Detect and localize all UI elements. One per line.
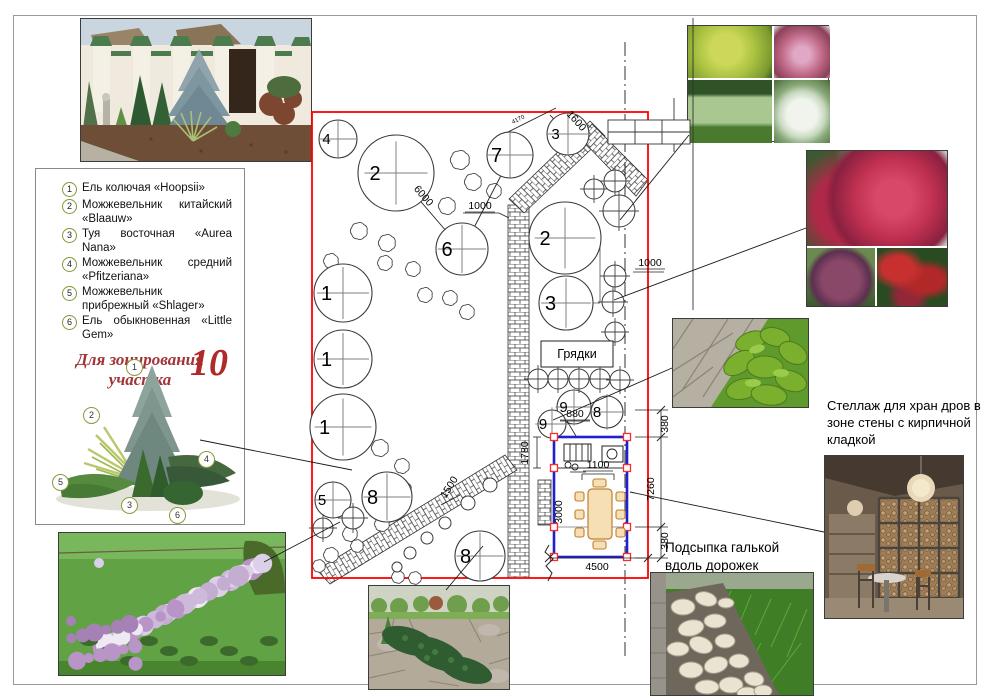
- lilac-leaf: [180, 656, 198, 666]
- garden-wall-illustration: [81, 19, 311, 161]
- photo-red-leaves: [877, 248, 947, 306]
- composite-badge-6: 6: [169, 507, 186, 524]
- photo-lilac-bush: [58, 532, 286, 676]
- photo-golden-shrub: [688, 26, 772, 78]
- plant-group-composite: 124536: [48, 357, 248, 519]
- lilac-bloom: [76, 628, 90, 642]
- collage-red-shrubs: [806, 150, 948, 307]
- lilac-bloom: [93, 648, 107, 662]
- item-number-badge: 1: [62, 182, 77, 197]
- lilac-bloom: [66, 633, 76, 643]
- list-item: 4Можжевельник средний «Pfitzeriana»: [62, 256, 236, 284]
- lilac-bloom: [129, 657, 143, 671]
- composite-badge-3: 3: [121, 497, 138, 514]
- lilac-leaf: [260, 636, 278, 646]
- lilac-bloom: [253, 554, 272, 573]
- item-number-badge: 5: [62, 286, 77, 301]
- composite-badge-2: 2: [83, 407, 100, 424]
- photo-pink-foliage: [774, 26, 830, 78]
- photo-creeping-juniper: [368, 585, 510, 690]
- plant-name: Можжевельник китайский «Blaauw»: [82, 198, 232, 226]
- photo-purple-barberry: [807, 248, 875, 306]
- plant-name: Ель обыкновенная «Little Gem»: [82, 314, 232, 342]
- lilac-bloom: [66, 616, 76, 626]
- composite-badge-5: 5: [52, 474, 69, 491]
- list-item: 2Можжевельник китайский «Blaauw»: [62, 198, 236, 226]
- composite-badge-4: 4: [198, 451, 215, 468]
- annotation-firewood: Стеллаж для хран дров в зоне стены с кир…: [827, 398, 982, 449]
- lilac-bloom: [155, 611, 166, 622]
- lilac-bloom: [94, 558, 104, 568]
- plant-name: Можжевельник прибрежный «Shlager»: [82, 285, 232, 313]
- lilac-bloom: [128, 639, 142, 653]
- photo-pebble-border: [650, 572, 814, 696]
- list-item: 3Туя восточная «Aurea Nana»: [62, 227, 236, 255]
- plant-group-illustration: [48, 357, 248, 519]
- lilac-bloom: [192, 588, 208, 604]
- lilac-bloom: [68, 652, 86, 670]
- composite-badge-1: 1: [126, 359, 143, 376]
- item-number-badge: 6: [62, 315, 77, 330]
- list-item: 1Ель колючая «Hoopsii»: [62, 181, 236, 197]
- lilac-leaf: [220, 646, 238, 656]
- plant-name: Туя восточная «Aurea Nana»: [82, 227, 232, 255]
- plant-list: 1Ель колючая «Hoopsii» 2Можжевельник кит…: [62, 181, 236, 342]
- list-item: 5Можжевельник прибрежный «Shlager»: [62, 285, 236, 313]
- photo-smoke-bush: [807, 151, 947, 246]
- item-number-badge: 4: [62, 257, 77, 272]
- photo-variegated-hedge: [688, 80, 772, 143]
- photo-hosta-path: [672, 318, 809, 408]
- annotation-pebbles: Подсыпка галькой вдоль дорожек: [665, 539, 800, 574]
- lilac-bloom: [111, 620, 125, 634]
- lilac-leaf: [240, 656, 258, 666]
- plant-legend: 1Ель колючая «Hoopsii» 2Можжевельник кит…: [35, 168, 245, 525]
- lilac-leaf: [160, 646, 178, 656]
- item-number-badge: 2: [62, 199, 77, 214]
- design-sheet: 1Ель колючая «Hoopsii» 2Можжевельник кит…: [0, 0, 990, 700]
- list-item: 6Ель обыкновенная «Little Gem»: [62, 314, 236, 342]
- photo-garden-wall: [80, 18, 312, 162]
- item-number-badge: 3: [62, 228, 77, 243]
- lilac-leaf: [140, 636, 158, 646]
- lilac-bloom: [167, 600, 185, 618]
- photo-silver-bush: [774, 80, 830, 143]
- plant-name: Ель колючая «Hoopsii»: [82, 181, 232, 197]
- plant-name: Можжевельник средний «Pfitzeriana»: [82, 256, 232, 284]
- photo-firewood-rack: [824, 455, 964, 619]
- lilac-leaf: [200, 636, 218, 646]
- collage-variegated-shrubs: [687, 25, 829, 142]
- lilac-bloom: [228, 565, 249, 586]
